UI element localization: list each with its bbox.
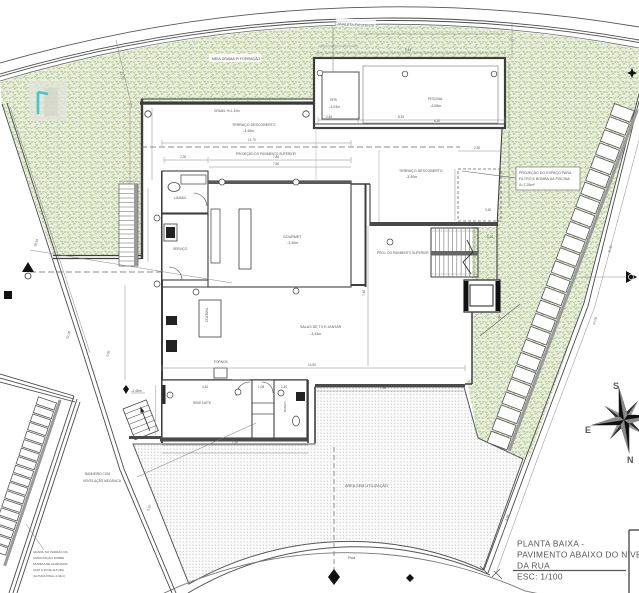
svg-text:1,08: 1,08 — [258, 385, 264, 389]
svg-text:PLANTA BAIXA -: PLANTA BAIXA - — [517, 539, 584, 549]
svg-text:0,30: 0,30 — [485, 208, 491, 212]
svg-text:A=7,25m²: A=7,25m² — [519, 183, 535, 187]
svg-text:BANHEIRO COM: BANHEIRO COM — [85, 472, 110, 476]
svg-text:7,90: 7,90 — [380, 386, 386, 390]
svg-text:7,40: 7,40 — [362, 290, 366, 296]
svg-text:2,30: 2,30 — [180, 155, 186, 159]
svg-text:7,40: 7,40 — [232, 440, 238, 444]
svg-text:TERRAÇO DESCOBERTO: TERRAÇO DESCOBERTO — [399, 169, 443, 173]
svg-text:GRADIL H=1,10m: GRADIL H=1,10m — [214, 109, 240, 113]
svg-text:PISCINA: PISCINA — [428, 97, 443, 101]
svg-text:DA RUA: DA RUA — [517, 561, 550, 571]
svg-text:(ALTURA FINAL 2,00m): (ALTURA FINAL 2,00m) — [33, 574, 65, 578]
svg-text:-3,40m: -3,40m — [406, 175, 417, 179]
svg-text:2,30: 2,30 — [474, 146, 480, 150]
svg-text:SPA: SPA — [330, 98, 338, 102]
svg-text:2,45: 2,45 — [326, 115, 332, 119]
svg-text:VENTILAÇÃO MECÂNICA: VENTILAÇÃO MECÂNICA — [83, 478, 122, 483]
svg-text:1,20: 1,20 — [487, 235, 493, 239]
svg-text:9,45: 9,45 — [405, 48, 411, 52]
svg-text:-4,06m: -4,06m — [430, 104, 441, 108]
svg-text:7,80: 7,80 — [273, 155, 279, 159]
svg-text:11,70: 11,70 — [248, 138, 256, 142]
svg-text:LAVABO: LAVABO — [174, 196, 187, 200]
svg-text:ASSOCIAÇÃO SOBRE: ASSOCIAÇÃO SOBRE — [33, 555, 64, 560]
svg-text:-4,03m: -4,03m — [329, 105, 340, 109]
svg-text:PROJ. DO PAVIMENTO SUPERIOR: PROJ. DO PAVIMENTO SUPERIOR — [377, 251, 429, 255]
svg-text:GRADIL NO PADRÃO DA: GRADIL NO PADRÃO DA — [33, 549, 68, 554]
svg-text:-3,40m: -3,40m — [287, 241, 298, 245]
svg-text:TERRAÇO DESCOBERTO: TERRAÇO DESCOBERTO — [232, 123, 276, 127]
svg-text:AREA SEM UTILIZAÇÃO: AREA SEM UTILIZAÇÃO — [345, 483, 388, 488]
svg-text:8,15: 8,15 — [398, 115, 404, 119]
svg-text:COM 0,40 DE ALTURA: COM 0,40 DE ALTURA — [33, 568, 64, 572]
svg-text:-3,40m: -3,40m — [243, 129, 254, 133]
svg-text:A: A — [498, 314, 501, 319]
svg-text:MEIA GRAMA P/ FORRAÇÃO: MEIA GRAMA P/ FORRAÇÃO — [212, 56, 261, 61]
svg-text:COZINHA: COZINHA — [205, 307, 209, 322]
svg-text:BANHO: BANHO — [283, 401, 287, 412]
svg-text:7,60: 7,60 — [273, 162, 279, 166]
svg-text:-3,43m: -3,43m — [310, 332, 321, 336]
svg-text:S: S — [613, 381, 619, 391]
svg-text:6,20: 6,20 — [434, 119, 440, 123]
svg-text:Rua: Rua — [348, 555, 356, 560]
svg-text:-3,48m: -3,48m — [131, 389, 142, 393]
svg-text:SEMI SUÍTE: SEMI SUÍTE — [193, 401, 211, 405]
svg-text:4,10: 4,10 — [202, 385, 208, 389]
svg-text:SERVIÇO: SERVIÇO — [173, 247, 188, 251]
svg-text:PROJEÇÃO DO ESPAÇO PARA: PROJEÇÃO DO ESPAÇO PARA — [519, 170, 572, 175]
svg-text:ESC: 1/100: ESC: 1/100 — [517, 572, 563, 582]
svg-text:GOURMET: GOURMET — [283, 235, 302, 239]
svg-text:FILTRO E BOMBA DA PISCINA: FILTRO E BOMBA DA PISCINA — [519, 177, 570, 181]
svg-text:MURETA DE ALVENARIA: MURETA DE ALVENARIA — [33, 562, 68, 566]
svg-text:E: E — [585, 425, 591, 435]
svg-text:14,90: 14,90 — [308, 363, 316, 367]
svg-text:PAVIMENTO ABAIXO DO NÍVEL: PAVIMENTO ABAIXO DO NÍVEL — [517, 550, 639, 560]
svg-text:N: N — [627, 455, 634, 465]
svg-text:1,40: 1,40 — [281, 385, 287, 389]
svg-text:FORNOS: FORNOS — [214, 360, 228, 364]
svg-text:PROJEÇÃO DO PAVIMENTO SUPERIOR: PROJEÇÃO DO PAVIMENTO SUPERIOR — [236, 151, 297, 156]
svg-text:SALAS DE TV E JANTAR: SALAS DE TV E JANTAR — [300, 325, 342, 329]
